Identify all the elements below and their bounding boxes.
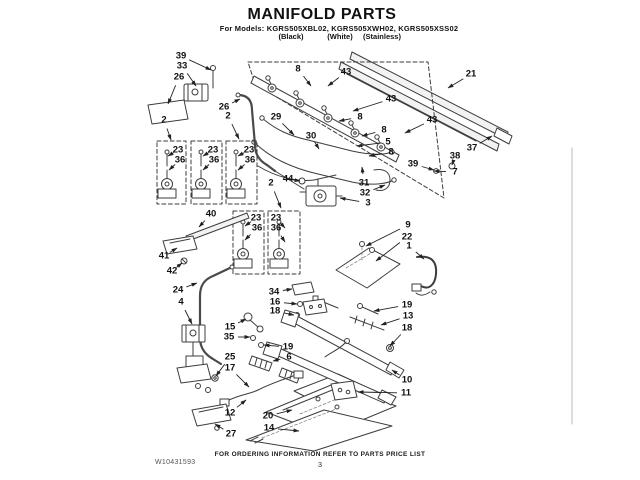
exploded-parts-diagram: 3933262622843214384385829303938377313234…	[0, 0, 640, 480]
callout-leader-43	[405, 124, 424, 133]
callout-36: 36	[252, 223, 263, 234]
callout-43: 43	[386, 94, 397, 105]
callout-29: 29	[271, 112, 282, 123]
callout-24: 24	[173, 285, 184, 296]
callout-9: 9	[405, 220, 410, 231]
callout-leader-39	[189, 60, 211, 70]
callout-leader-18	[390, 335, 401, 347]
callout-13: 13	[403, 311, 414, 322]
callout-8: 8	[388, 147, 393, 158]
callout-40: 40	[206, 209, 217, 220]
callout-leader-39	[422, 167, 434, 171]
callout-12: 12	[225, 408, 236, 419]
callout-27: 27	[226, 429, 237, 440]
callout-leader-4	[185, 310, 192, 324]
callout-leader-3	[340, 198, 359, 201]
callout-42: 42	[167, 266, 178, 277]
callout-38: 38	[450, 151, 461, 162]
callout-leader-8	[304, 76, 312, 86]
callout-2: 2	[268, 178, 273, 189]
callout-4: 4	[178, 297, 184, 308]
callout-leader-16	[284, 303, 297, 304]
callout-leader-13	[381, 319, 400, 325]
callout-6: 6	[286, 352, 291, 363]
callout-8: 8	[357, 112, 362, 123]
callout-36: 36	[245, 155, 256, 166]
callout-14: 14	[264, 423, 275, 434]
callout-36: 36	[271, 223, 282, 234]
callout-26: 26	[174, 72, 185, 83]
callout-44: 44	[283, 174, 294, 185]
document-number: W10431593	[155, 459, 195, 466]
callout-leader-2	[167, 129, 171, 141]
callout-leader-34	[283, 289, 292, 291]
callout-18: 18	[270, 306, 281, 317]
callout-leader-31	[362, 167, 363, 174]
callout-39: 39	[408, 159, 419, 170]
callout-41: 41	[159, 251, 170, 262]
callout-43: 43	[427, 115, 438, 126]
callout-leader-40	[199, 221, 205, 227]
callout-leader-36	[238, 165, 245, 171]
callout-leader-15	[238, 319, 246, 323]
callout-leader-32	[373, 185, 385, 190]
callout-leader-9	[366, 229, 400, 246]
callout-leader-8	[362, 132, 375, 136]
callout-7: 7	[452, 167, 457, 178]
callout-18: 18	[402, 323, 413, 334]
callout-21: 21	[466, 69, 477, 80]
callout-leader-8	[339, 119, 351, 121]
callout-leader-36	[245, 234, 251, 240]
page-number: 3	[318, 460, 322, 469]
callout-8: 8	[381, 125, 386, 136]
callout-leader-26	[232, 99, 240, 103]
callout-leader-43	[328, 78, 339, 87]
callout-leader-6	[273, 359, 280, 361]
callout-36: 36	[209, 155, 220, 166]
callout-leader-25	[216, 364, 225, 376]
callout-leader-17	[236, 374, 249, 387]
callout-17: 17	[225, 363, 236, 374]
callout-25: 25	[225, 352, 236, 363]
callout-leader-19	[374, 307, 398, 311]
callout-8: 8	[295, 64, 300, 75]
callout-leader-36	[281, 236, 285, 242]
callout-leader-7	[434, 171, 446, 172]
callout-11: 11	[401, 388, 412, 399]
callout-10: 10	[402, 375, 413, 386]
callout-33: 33	[177, 61, 188, 72]
callout-leader-12	[237, 400, 246, 407]
callout-2: 2	[225, 111, 230, 122]
callout-2: 2	[161, 115, 166, 126]
callout-leader-42	[177, 263, 183, 267]
manifold-parts-page: MANIFOLD PARTS For Models: KGRS505XBL02,…	[0, 0, 640, 480]
callout-3: 3	[365, 198, 370, 209]
callout-leader-2	[232, 124, 239, 139]
callout-leader-21	[448, 79, 463, 88]
ordering-note: FOR ORDERING INFORMATION REFER TO PARTS …	[215, 451, 426, 458]
callout-1: 1	[406, 241, 412, 252]
callout-37: 37	[467, 143, 478, 154]
callout-20: 20	[263, 411, 274, 422]
callout-36: 36	[175, 155, 186, 166]
callout-leader-2	[274, 191, 281, 208]
callout-leader-24	[186, 283, 197, 287]
callout-43: 43	[341, 67, 352, 78]
callout-19: 19	[402, 300, 413, 311]
callout-30: 30	[306, 131, 317, 142]
callout-35: 35	[224, 332, 235, 343]
callout-leader-43	[353, 102, 382, 111]
callout-leader-29	[282, 123, 294, 135]
